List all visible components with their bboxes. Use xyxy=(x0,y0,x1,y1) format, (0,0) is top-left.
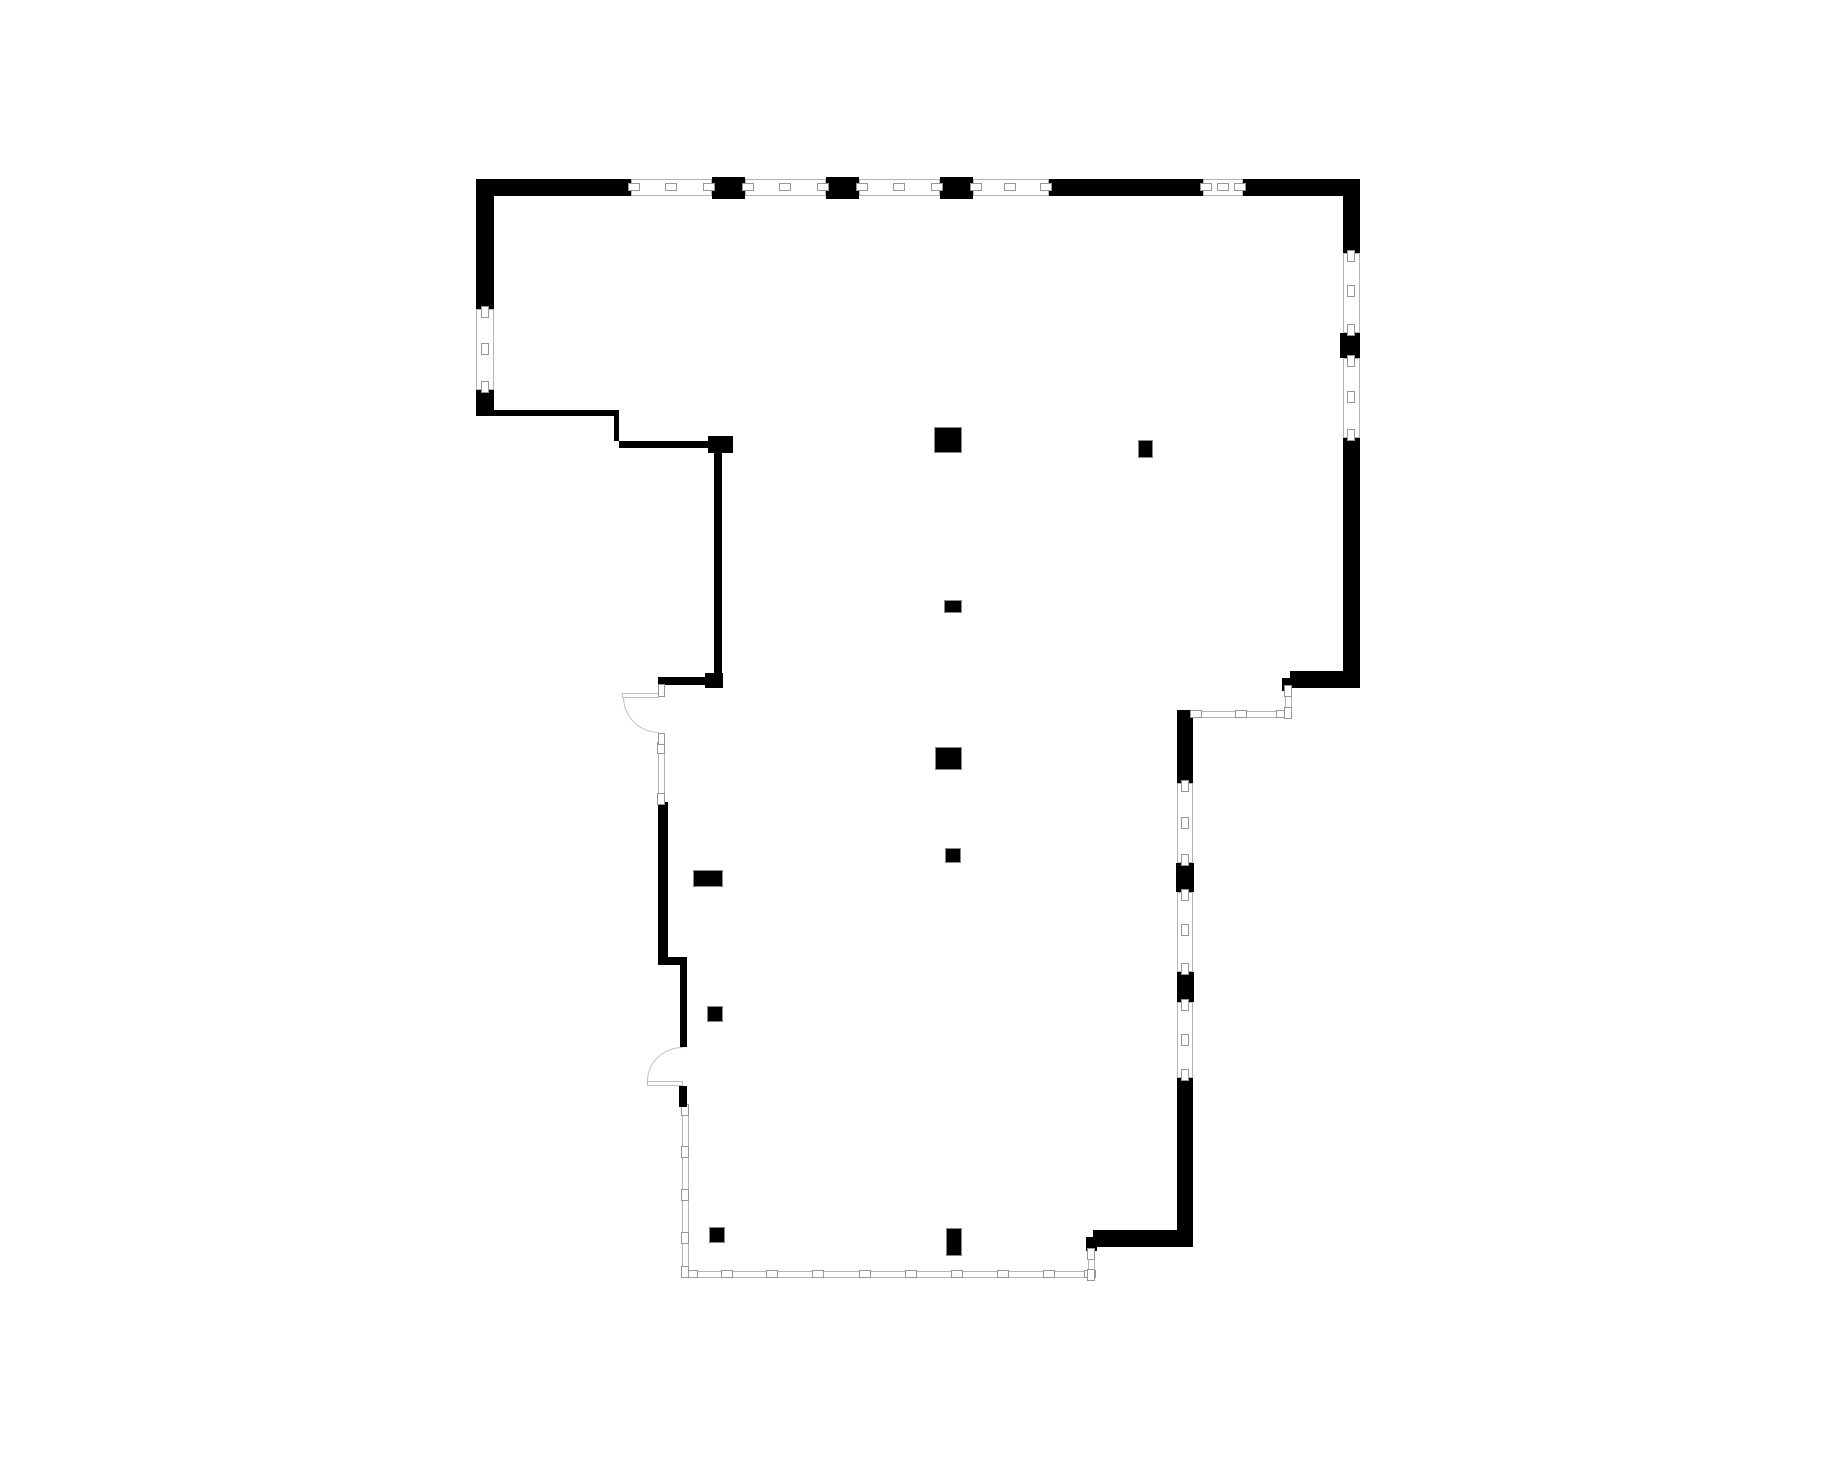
mullion-tick xyxy=(893,183,905,191)
mullion-tick xyxy=(1181,1069,1189,1081)
mullion-tick xyxy=(681,1189,689,1201)
mullion-tick xyxy=(1004,183,1016,191)
column xyxy=(709,1227,725,1243)
mullion-tick xyxy=(856,183,868,191)
mullion-tick xyxy=(1040,183,1052,191)
wall-segment xyxy=(940,177,973,199)
mullion-tick xyxy=(1347,250,1355,262)
wall-segment xyxy=(705,673,723,688)
mullion-tick xyxy=(742,183,754,191)
wall-segment xyxy=(826,177,859,199)
door-jamb xyxy=(658,684,665,697)
mullion-tick xyxy=(481,381,489,393)
wall-segment xyxy=(476,179,494,309)
mullion-tick xyxy=(1181,999,1189,1011)
door-swing-arc xyxy=(647,1047,683,1081)
wall-segment xyxy=(494,410,619,416)
mullion-tick xyxy=(970,183,982,191)
mullion-tick xyxy=(1181,854,1189,866)
mullion-tick xyxy=(1347,285,1355,297)
wall-segment xyxy=(712,177,745,199)
mullion-tick xyxy=(1284,685,1292,697)
mullion-tick xyxy=(905,1270,917,1278)
mullion-tick xyxy=(1043,1270,1055,1278)
mullion-tick xyxy=(657,793,665,805)
mullion-tick xyxy=(1181,1034,1189,1046)
wall-segment xyxy=(1343,438,1360,688)
column xyxy=(946,1228,962,1256)
mullion-tick xyxy=(1087,1269,1095,1281)
wall-segment xyxy=(1177,1078,1193,1247)
column xyxy=(945,848,961,863)
mullion-tick xyxy=(997,1270,1009,1278)
door-swing-arc xyxy=(623,697,659,733)
column xyxy=(707,1006,723,1022)
mullion-tick xyxy=(481,306,489,318)
wall-segment xyxy=(1290,671,1360,688)
column xyxy=(1138,440,1153,458)
window-band xyxy=(689,1271,1093,1278)
mullion-tick xyxy=(681,1232,689,1244)
mullion-tick xyxy=(628,183,640,191)
mullion-tick xyxy=(951,1270,963,1278)
wall-segment xyxy=(1176,863,1194,892)
wall-segment xyxy=(476,390,494,416)
wall-segment xyxy=(476,179,631,196)
column xyxy=(944,600,962,613)
wall-segment xyxy=(658,957,687,965)
mullion-tick xyxy=(1217,183,1229,191)
mullion-tick xyxy=(1181,963,1189,975)
door-jamb xyxy=(679,1086,687,1107)
wall-segment xyxy=(1343,179,1360,253)
mullion-tick xyxy=(817,183,829,191)
mullion-tick xyxy=(1181,889,1189,901)
mullion-tick xyxy=(931,183,943,191)
door-leaf xyxy=(647,1081,683,1086)
mullion-tick xyxy=(1347,355,1355,367)
mullion-tick xyxy=(1200,183,1212,191)
wall-segment xyxy=(1177,972,1194,1002)
wall-segment xyxy=(658,802,668,957)
mullion-tick xyxy=(859,1270,871,1278)
door-leaf xyxy=(622,693,659,698)
wall-segment xyxy=(614,416,619,441)
mullion-tick xyxy=(703,183,715,191)
wall-segment xyxy=(714,453,722,677)
mullion-tick xyxy=(766,1270,778,1278)
mullion-tick xyxy=(1234,183,1246,191)
wall-segment xyxy=(708,436,733,453)
mullion-tick xyxy=(779,183,791,191)
mullion-tick xyxy=(681,1146,689,1158)
wall-segment xyxy=(619,441,708,448)
column xyxy=(934,427,962,453)
column xyxy=(935,747,962,770)
mullion-tick xyxy=(1190,710,1202,718)
wall-segment xyxy=(1177,710,1193,783)
column xyxy=(693,870,723,887)
mullion-tick xyxy=(721,1270,733,1278)
mullion-tick xyxy=(1347,391,1355,403)
mullion-tick xyxy=(1347,324,1355,336)
wall-segment xyxy=(680,965,687,1047)
mullion-tick xyxy=(1181,780,1189,792)
mullion-tick xyxy=(481,343,489,355)
mullion-tick xyxy=(665,183,677,191)
mullion-tick xyxy=(681,1266,689,1278)
mullion-tick xyxy=(1347,429,1355,441)
mullion-tick xyxy=(1284,707,1292,719)
mullion-tick xyxy=(1087,1248,1095,1260)
mullion-tick xyxy=(1181,924,1189,936)
mullion-tick xyxy=(1235,710,1247,718)
floor-plan xyxy=(0,0,1840,1460)
wall-segment xyxy=(1049,179,1203,196)
door-jamb xyxy=(658,733,665,745)
mullion-tick xyxy=(812,1270,824,1278)
mullion-tick xyxy=(1181,817,1189,829)
